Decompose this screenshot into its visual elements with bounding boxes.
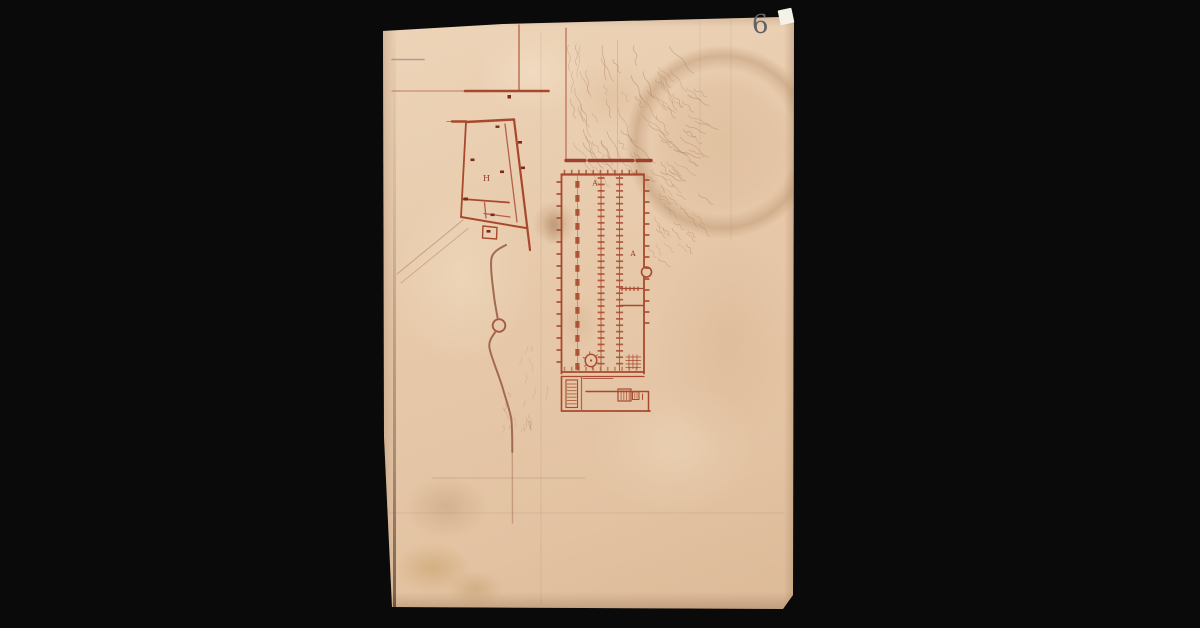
wall-tick — [616, 241, 623, 243]
wall-tick — [633, 287, 634, 291]
wall-tick — [598, 209, 605, 211]
wall-tick — [616, 267, 623, 269]
pillar-block — [575, 293, 579, 300]
wall-tick — [598, 190, 605, 192]
wall-tick — [557, 181, 562, 183]
terrain-stroke — [657, 116, 669, 134]
wall-tick — [571, 170, 573, 174]
terrain-stroke — [694, 89, 707, 97]
terrain-stroke — [699, 194, 714, 204]
terrain-stroke — [661, 78, 673, 103]
wall-tick — [598, 299, 605, 301]
wall-tick — [598, 324, 605, 326]
wall-tick — [616, 273, 623, 275]
wall-tick — [645, 278, 650, 280]
apse-center — [590, 359, 592, 361]
terrain-stroke — [525, 420, 528, 432]
pillar-block — [575, 349, 579, 356]
terrain-stroke — [530, 359, 534, 373]
terrain-stroke — [688, 95, 709, 106]
wall-tick — [557, 229, 562, 231]
wall-tick — [557, 289, 562, 291]
wall-tick — [616, 216, 623, 218]
terrain-stroke — [526, 417, 533, 429]
terrain-stroke — [661, 185, 665, 192]
terrain-stroke — [578, 107, 591, 137]
terrain-stroke — [586, 71, 589, 94]
wall-tick — [616, 305, 623, 307]
wall-tick — [598, 222, 605, 224]
wall-tick — [557, 265, 562, 267]
terrain-stroke — [622, 91, 629, 101]
building-h-cross-wall — [462, 199, 509, 203]
pillar-block — [575, 181, 579, 188]
wall-tick — [645, 234, 650, 236]
terrain-stroke — [678, 244, 687, 252]
terrain-stroke — [604, 85, 608, 95]
wall-tick — [557, 205, 562, 207]
wall-tick — [616, 203, 623, 205]
wall-tick — [598, 356, 605, 358]
wall-tick — [616, 177, 623, 179]
wall-tick — [621, 367, 623, 371]
wall-tick — [598, 331, 605, 333]
road-lower — [489, 333, 512, 453]
terrain-stroke — [675, 222, 684, 229]
terrain-stroke — [670, 69, 687, 92]
terrain-stroke — [503, 425, 505, 433]
pencil-marks — [390, 20, 784, 604]
step-line — [633, 355, 634, 370]
terrain-stroke — [508, 392, 511, 397]
terrain-stroke — [670, 47, 694, 73]
terrain-stroke — [686, 125, 706, 134]
terrain-stroke — [649, 124, 673, 142]
terrain-stroke — [525, 373, 527, 383]
wall-tick — [645, 289, 650, 291]
wall-tick — [598, 254, 605, 256]
terrain-stroke — [592, 142, 601, 154]
wall-tick — [557, 241, 562, 243]
wall-tick — [557, 349, 562, 351]
building-h-partition — [485, 203, 487, 219]
wall-tick — [616, 312, 623, 314]
terrain-stroke — [656, 244, 661, 255]
road — [489, 245, 512, 523]
terrain-stroke — [521, 425, 524, 432]
terrain-stroke — [568, 45, 571, 71]
terrain-stroke — [601, 58, 614, 81]
terrain-stroke — [695, 121, 718, 129]
wall-tick — [585, 170, 587, 174]
terrain-stroke — [581, 104, 589, 127]
wall-tick — [600, 170, 602, 174]
wall-tick — [598, 228, 605, 230]
terrain-stroke — [514, 415, 517, 428]
wall-tick — [616, 299, 623, 301]
wall-tick — [645, 201, 650, 203]
building-h-inner-wall — [505, 124, 517, 222]
wall-tick — [616, 350, 623, 352]
step-line — [637, 355, 638, 370]
stair-rung — [567, 403, 577, 404]
wall-tick — [557, 277, 562, 279]
stair-rung — [567, 384, 577, 385]
wall-tick — [598, 235, 605, 237]
terrain-stroke — [632, 76, 643, 100]
wall-tick — [645, 223, 650, 225]
wall-tick — [616, 228, 623, 230]
wall-tick — [636, 170, 638, 174]
wall-tick — [625, 287, 626, 291]
wall-tick — [645, 190, 650, 192]
terrain-stroke — [659, 259, 671, 267]
wall-tick — [598, 267, 605, 269]
track-line — [397, 220, 463, 274]
pillar-block — [575, 265, 579, 272]
terrain-stroke — [525, 346, 528, 354]
building-label-h: H — [483, 174, 490, 183]
terrain-stroke — [657, 224, 667, 235]
wall-tick — [598, 280, 605, 282]
wall-tick — [598, 196, 605, 198]
wall-tick — [616, 356, 623, 358]
building-h-left-wall — [461, 122, 466, 217]
wall-tick — [645, 322, 650, 324]
wall-tick — [598, 305, 605, 307]
terrain-stroke — [658, 72, 670, 88]
wall-tick — [616, 324, 623, 326]
wall-tick — [598, 184, 605, 186]
terrain-stroke — [687, 244, 692, 254]
terrain-stroke — [689, 231, 696, 237]
wall-tick — [598, 248, 605, 250]
wall-tick — [621, 287, 622, 291]
pillar-block — [575, 237, 579, 244]
hatch-lines — [567, 355, 641, 405]
terrain-stroke — [674, 101, 682, 108]
wall-tick — [600, 367, 602, 371]
wall-tick — [616, 292, 623, 294]
wall-tick — [645, 256, 650, 258]
terrain-stroke — [523, 401, 525, 407]
pillar-block — [575, 363, 579, 370]
terrain-stroke — [656, 229, 666, 238]
terrain-stroke — [661, 162, 668, 174]
wall-tick — [598, 363, 605, 365]
wall-tick — [637, 287, 638, 291]
pillar-block — [575, 195, 579, 202]
pillar-block — [575, 279, 579, 286]
wall-tick — [557, 313, 562, 315]
wall-tick — [616, 331, 623, 333]
pillar-block — [575, 223, 579, 230]
terrain-stroke — [680, 207, 686, 214]
terrain-stroke — [672, 228, 681, 239]
terrain-stroke — [533, 388, 536, 399]
wall-tick — [557, 361, 562, 363]
terrain-stroke — [643, 116, 668, 136]
terrain-stroke — [689, 150, 699, 154]
wall-tick — [557, 193, 562, 195]
wall-tick — [571, 367, 573, 371]
page-number: 6 — [751, 12, 769, 39]
terrain-stroke — [575, 88, 584, 122]
terrain-stroke — [583, 143, 603, 169]
terrain-stroke — [571, 71, 573, 93]
terrain-stroke — [633, 45, 637, 65]
wall-tick — [645, 267, 650, 269]
terrain-stroke — [575, 44, 577, 65]
wall-tick — [598, 292, 605, 294]
step-line — [629, 355, 630, 370]
wall-tick — [598, 216, 605, 218]
building-h-right-wall — [514, 120, 530, 251]
wall-tick — [593, 170, 595, 174]
terrain-stroke — [649, 248, 656, 258]
wall-tick — [598, 241, 605, 243]
viewer-background: H A A 6 — [0, 0, 1200, 628]
pillar-block — [575, 335, 579, 342]
terrain-stroke — [682, 101, 693, 112]
wall-tick — [557, 301, 562, 303]
ink-drawing-layer: H A A — [0, 0, 1200, 628]
wall-tick — [585, 367, 587, 371]
terrain-stroke — [593, 113, 598, 122]
hall-label-a-lower: A — [630, 250, 637, 258]
building-h-cross-wall — [484, 214, 510, 218]
wall-tick — [598, 312, 605, 314]
wall-tick — [557, 325, 562, 327]
wall-tick — [598, 337, 605, 339]
wall-tick — [616, 196, 623, 198]
terrain-stroke — [700, 224, 710, 237]
wall-tick — [616, 254, 623, 256]
wall-tick — [607, 367, 609, 371]
track-line — [401, 229, 468, 284]
wall-tick — [564, 367, 566, 371]
wall-tick — [621, 170, 623, 174]
wall-tick — [616, 222, 623, 224]
wall-tick — [607, 170, 609, 174]
wall-tick — [616, 280, 623, 282]
hatch — [629, 390, 630, 400]
wall-tick — [598, 344, 605, 346]
pillar-block — [575, 209, 579, 216]
wall-tick — [557, 253, 562, 255]
wall-tick — [645, 212, 650, 214]
hatch — [637, 393, 638, 399]
terrain-stroke — [577, 46, 580, 78]
pillar-block — [575, 307, 579, 314]
stair-rung — [567, 390, 577, 391]
wall-tick — [593, 367, 595, 371]
wall-tick — [616, 344, 623, 346]
stair-rung — [567, 387, 577, 388]
hall-label-a-upper: A — [592, 180, 599, 188]
stair-rung — [567, 393, 577, 394]
wall-tick — [616, 337, 623, 339]
terrain-stroke — [643, 72, 654, 99]
wall-tick — [598, 318, 605, 320]
wall-tick — [614, 170, 616, 174]
wall-tick — [598, 260, 605, 262]
wall-tick — [598, 177, 605, 179]
small-room — [633, 392, 640, 400]
wall-ticks — [557, 170, 650, 371]
terrain-stroke — [664, 204, 672, 215]
pillar-block — [575, 321, 579, 328]
wall-tick — [629, 170, 631, 174]
left-site-plan — [392, 25, 549, 283]
wall-tick — [645, 245, 650, 247]
terrain-stroke — [546, 386, 548, 400]
hatch — [626, 390, 627, 400]
wall-tick — [616, 248, 623, 250]
hatch — [621, 390, 622, 400]
terrain-stroke — [693, 213, 704, 225]
terrain-stroke — [520, 358, 522, 365]
well-circle — [493, 319, 506, 332]
road-upper — [491, 245, 506, 318]
wall-tick — [616, 235, 623, 237]
wall-tick — [616, 260, 623, 262]
wall-tick — [614, 367, 616, 371]
wall-tick — [616, 184, 623, 186]
wall-tick — [616, 190, 623, 192]
wall-tick — [616, 209, 623, 211]
wall-tick — [557, 217, 562, 219]
wall-tick — [645, 311, 650, 313]
building-h-top-wall — [466, 120, 514, 123]
terrain-stroke — [687, 213, 698, 226]
stair-rung — [567, 400, 577, 401]
wall-tick — [557, 337, 562, 339]
main-building-plan: H A A — [483, 28, 652, 411]
wall-tick — [578, 170, 580, 174]
wall-tick — [598, 203, 605, 205]
wall-tick — [598, 350, 605, 352]
hatch — [634, 393, 635, 399]
terrain-stroke — [663, 102, 676, 118]
terrain-stroke — [655, 217, 662, 232]
terrain-stroke — [618, 109, 632, 140]
terrain-stroke — [669, 208, 678, 219]
terrain-stroke — [665, 243, 674, 252]
wall-tick — [645, 300, 650, 302]
terrain-stroke — [613, 59, 620, 73]
terrain-hatching — [503, 44, 719, 432]
terrain-stroke — [531, 346, 532, 351]
wall-tick — [629, 287, 630, 291]
wall-tick — [616, 318, 623, 320]
hatch — [623, 390, 624, 400]
terrain-stroke — [606, 100, 611, 118]
wall-tick — [645, 179, 650, 181]
terrain-stroke — [571, 99, 576, 118]
terrain-stroke — [667, 189, 672, 195]
pillar-block — [575, 251, 579, 258]
terrain-stroke — [504, 403, 506, 412]
wall-tick — [598, 286, 605, 288]
wall-tick — [598, 273, 605, 275]
terrain-stroke — [619, 141, 625, 149]
gate-mark — [508, 95, 512, 99]
stair-rung — [567, 397, 577, 398]
wall-tick — [564, 170, 566, 174]
wall-tick — [616, 363, 623, 365]
terrain-stroke — [676, 194, 686, 200]
